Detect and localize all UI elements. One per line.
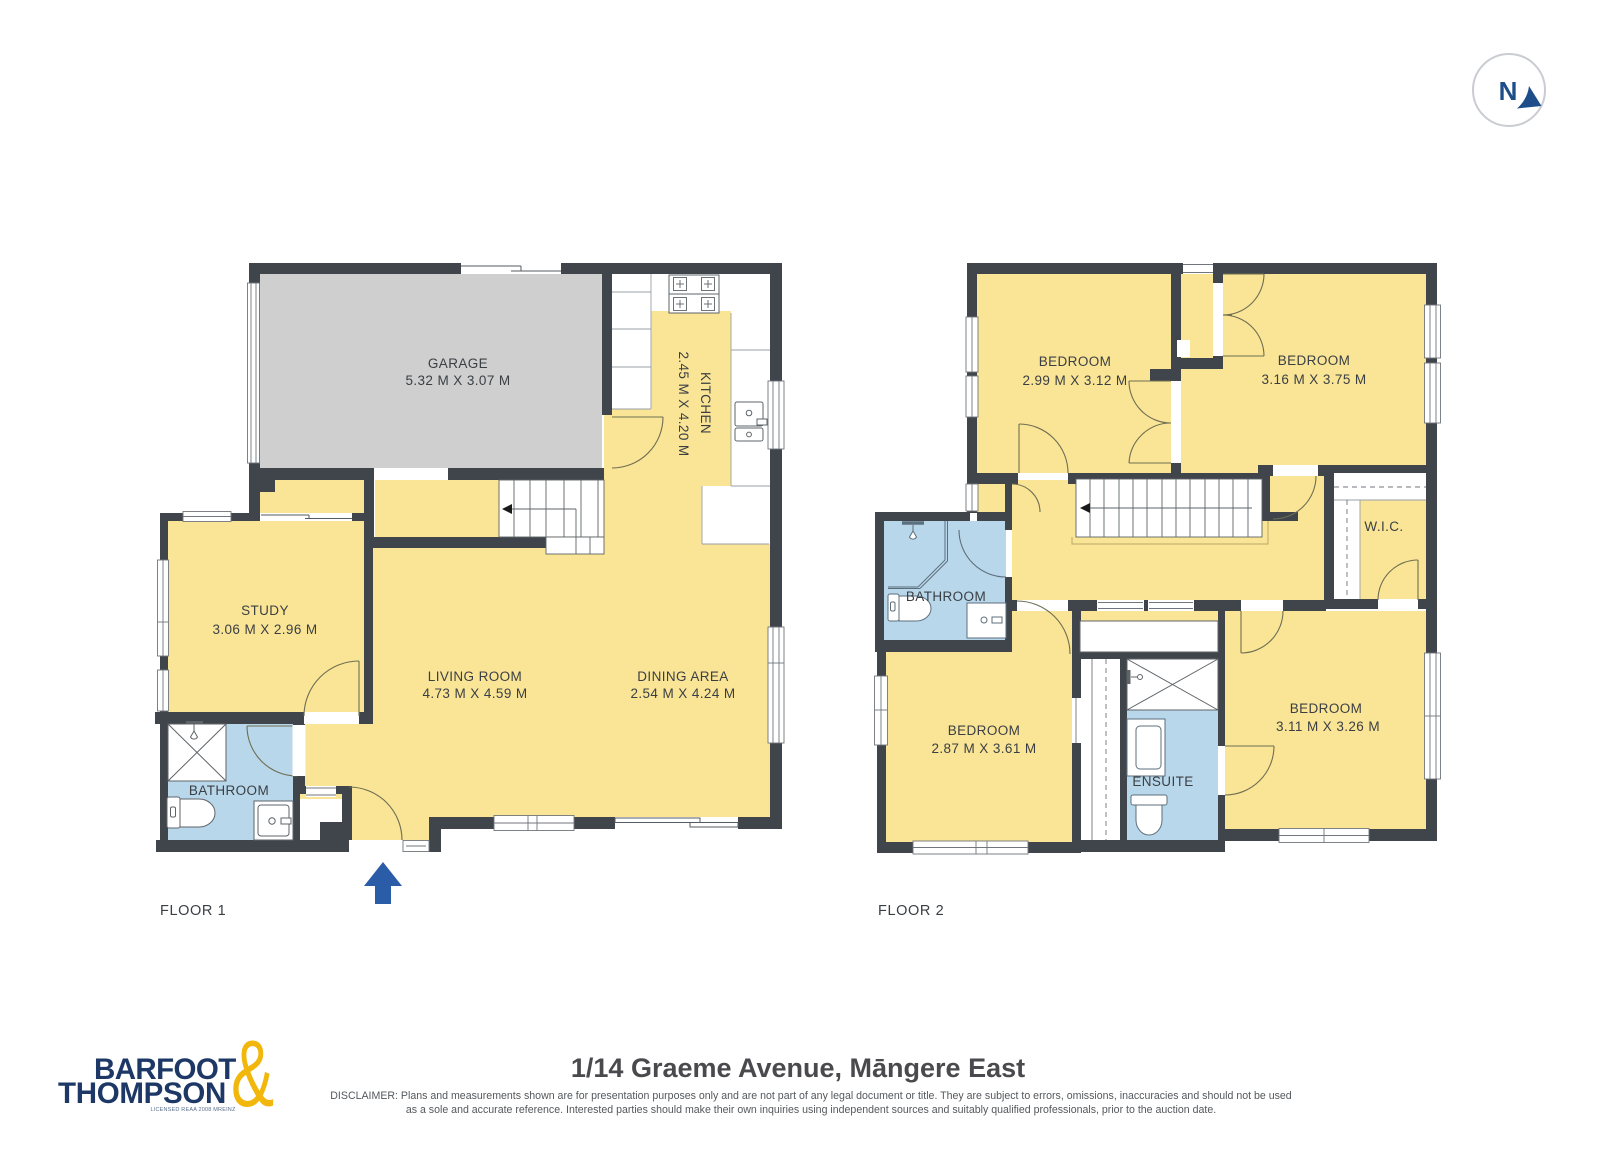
svg-text:BATHROOM: BATHROOM [906, 589, 986, 604]
svg-text:3.11 M X 3.26 M: 3.11 M X 3.26 M [1276, 719, 1380, 734]
svg-text:STUDY: STUDY [241, 603, 289, 618]
svg-text:3.06 M X 2.96 M: 3.06 M X 2.96 M [212, 622, 317, 637]
svg-text:5.32 M X 3.07 M: 5.32 M X 3.07 M [405, 373, 510, 388]
svg-text:4.73 M X 4.59 M: 4.73 M X 4.59 M [422, 686, 527, 701]
svg-text:DINING AREA: DINING AREA [637, 669, 728, 684]
svg-text:3.16 M X 3.75 M: 3.16 M X 3.75 M [1261, 372, 1366, 387]
svg-text:THOMPSON: THOMPSON [58, 1077, 226, 1110]
svg-text:BEDROOM: BEDROOM [1278, 353, 1351, 368]
svg-text:2.99 M X 3.12 M: 2.99 M X 3.12 M [1022, 373, 1127, 388]
svg-text:BEDROOM: BEDROOM [1039, 354, 1112, 369]
svg-text:N: N [1499, 76, 1518, 106]
svg-text:KITCHEN: KITCHEN [698, 372, 713, 434]
svg-text:LICENSED REAA 2008 MREINZ: LICENSED REAA 2008 MREINZ [150, 1107, 236, 1113]
svg-text:ENSUITE: ENSUITE [1132, 774, 1193, 789]
svg-text:as a sole and accurate referen: as a sole and accurate reference. Intere… [406, 1104, 1216, 1116]
svg-text:FLOOR 2: FLOOR 2 [878, 903, 944, 919]
svg-text:2.54 M X 4.24 M: 2.54 M X 4.24 M [630, 686, 735, 701]
svg-text:DISCLAIMER: Plans and measurem: DISCLAIMER: Plans and measurements shown… [330, 1090, 1292, 1102]
svg-text:BEDROOM: BEDROOM [948, 723, 1021, 738]
svg-text:LIVING ROOM: LIVING ROOM [428, 669, 522, 684]
svg-text:BEDROOM: BEDROOM [1290, 701, 1363, 716]
svg-text:2.87 M X 3.61 M: 2.87 M X 3.61 M [931, 741, 1036, 756]
svg-text:W.I.C.: W.I.C. [1364, 519, 1403, 534]
svg-text:2.45 M X 4.20 M: 2.45 M X 4.20 M [676, 351, 691, 456]
svg-text:GARAGE: GARAGE [428, 356, 488, 371]
svg-text:BATHROOM: BATHROOM [189, 783, 269, 798]
svg-text:&: & [231, 1021, 274, 1127]
svg-text:1/14 Graeme Avenue, Māngere Ea: 1/14 Graeme Avenue, Māngere East [571, 1053, 1025, 1083]
svg-text:FLOOR 1: FLOOR 1 [160, 903, 226, 919]
